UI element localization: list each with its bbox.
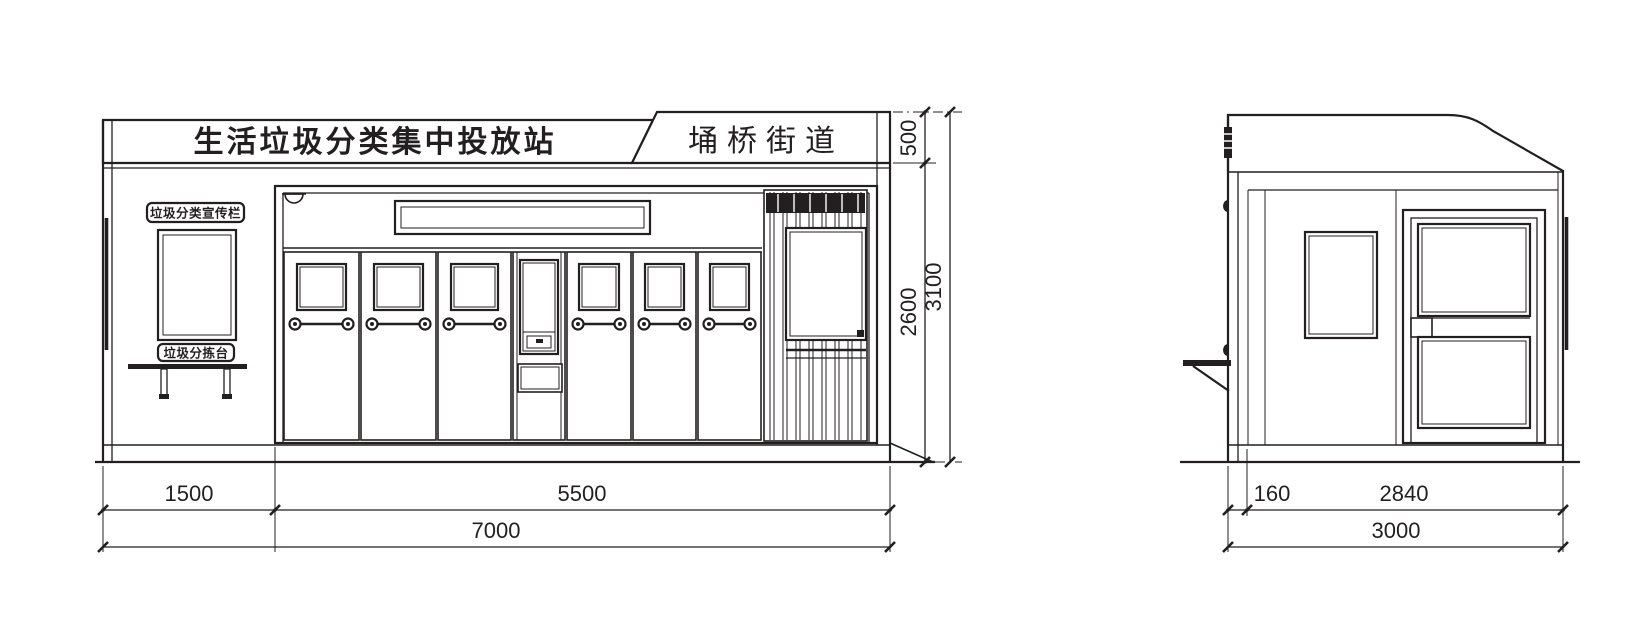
dim-total-depth: 3000 bbox=[1372, 518, 1421, 543]
dim-front-offset: 160 bbox=[1254, 481, 1291, 506]
table-brace bbox=[1193, 366, 1229, 391]
dim-body-height: 2600 bbox=[896, 288, 921, 337]
publicity-board bbox=[158, 230, 236, 340]
sorting-table bbox=[128, 364, 247, 399]
louver-panel bbox=[764, 190, 867, 441]
roof-profile bbox=[1228, 115, 1563, 172]
main-sign-text: 生活垃圾分类集中投放站 bbox=[194, 125, 557, 160]
side-elevation: 160 2840 3000 bbox=[1180, 115, 1580, 552]
side-door bbox=[1403, 210, 1545, 443]
sign-band: 生活垃圾分类集中投放站 埇桥街道 bbox=[103, 112, 890, 168]
louver-top-vent bbox=[766, 193, 865, 213]
kiosk-hatch bbox=[518, 364, 562, 392]
bin-door-4 bbox=[567, 252, 631, 440]
bin-door-6 bbox=[698, 252, 761, 440]
dim-body-depth: 2840 bbox=[1380, 481, 1429, 506]
drawing-canvas: 生活垃圾分类集中投放站 埇桥街道 垃圾分类宣传栏 垃圾分拣台 bbox=[0, 0, 1640, 639]
dim-total-height: 3100 bbox=[921, 263, 946, 312]
dim-total-width: 7000 bbox=[472, 518, 521, 543]
side-bottom-dimensions: 160 2840 3000 bbox=[1223, 449, 1568, 552]
front-elevation: 生活垃圾分类集中投放站 埇桥街道 垃圾分类宣传栏 垃圾分拣台 bbox=[95, 107, 962, 552]
elevation-drawing: 生活垃圾分类集中投放站 埇桥街道 垃圾分类宣传栏 垃圾分拣台 bbox=[0, 0, 1640, 639]
district-sign-text: 埇桥街道 bbox=[688, 124, 844, 159]
side-window bbox=[1305, 232, 1377, 338]
wall-hinge-lower bbox=[1223, 344, 1228, 356]
left-wall-section: 垃圾分类宣传栏 垃圾分拣台 bbox=[128, 203, 247, 399]
sorting-table-profile bbox=[1183, 360, 1231, 391]
dim-band-height: 500 bbox=[896, 120, 921, 157]
publicity-board-label: 垃圾分类宣传栏 bbox=[150, 206, 241, 221]
kiosk-button bbox=[536, 339, 543, 343]
bin-enclosure bbox=[275, 186, 877, 443]
door-handle-side bbox=[1411, 318, 1432, 337]
front-height-dimensions: 500 2600 3100 bbox=[893, 107, 962, 467]
bin-door-5 bbox=[633, 252, 696, 440]
sign-band-edge bbox=[1224, 127, 1232, 158]
bin-door-3 bbox=[438, 252, 511, 440]
wall-hinge-upper bbox=[1223, 200, 1228, 212]
sorting-table-label: 垃圾分拣台 bbox=[163, 346, 228, 361]
bin-door-2 bbox=[361, 252, 436, 440]
bin-door-1 bbox=[284, 252, 359, 440]
dim-left-width: 1500 bbox=[165, 481, 214, 506]
led-display-strip bbox=[395, 201, 650, 234]
poster-board bbox=[786, 228, 866, 340]
kiosk-column bbox=[513, 252, 565, 440]
dim-bin-width: 5500 bbox=[558, 481, 607, 506]
